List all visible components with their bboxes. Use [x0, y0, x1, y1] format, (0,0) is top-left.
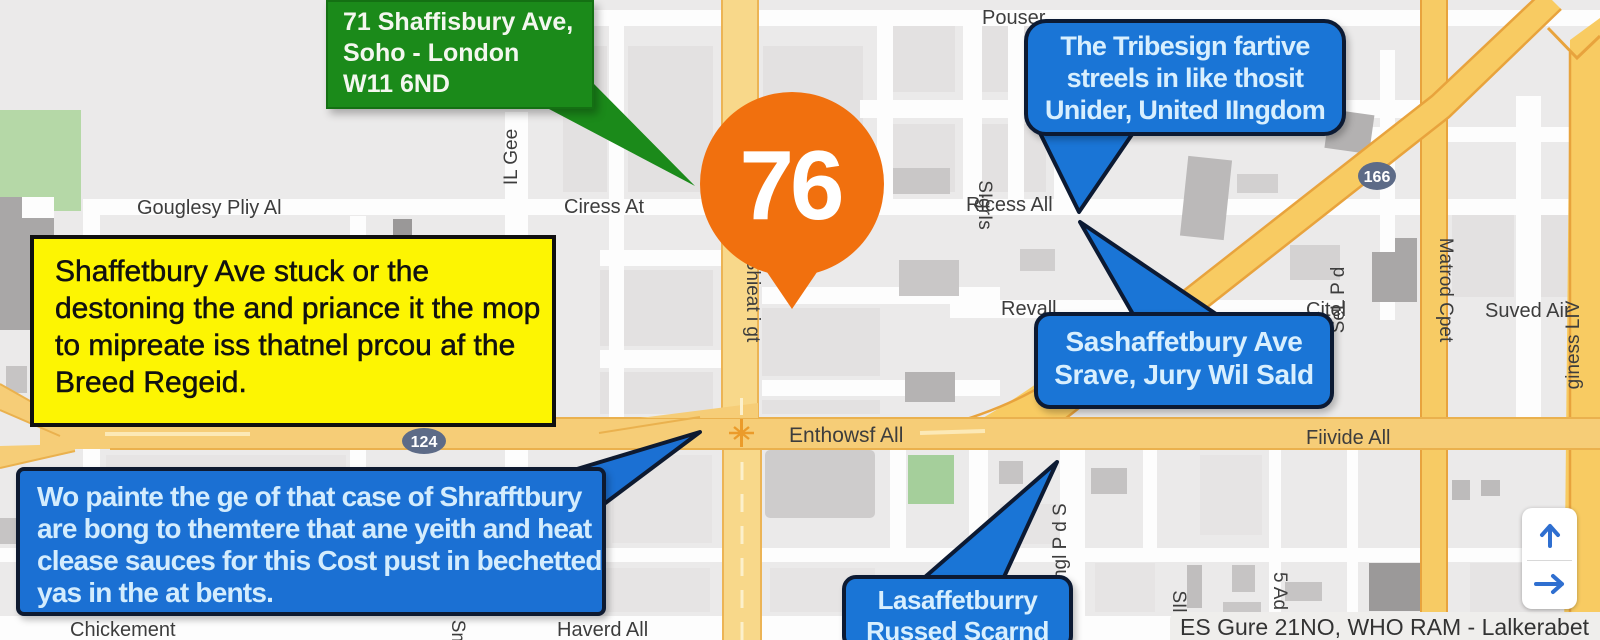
svg-text:166: 166 — [1364, 169, 1391, 186]
svg-text:Haverd All: Haverd All — [557, 619, 648, 640]
svg-text:5 Ad: 5 Ad — [1269, 572, 1290, 610]
svg-text:Sm: Sm — [447, 620, 468, 640]
svg-text:Shieat i gt: Shieat i gt — [742, 258, 763, 343]
svg-text:Chickement: Chickement — [70, 619, 176, 640]
svg-text:Enthowsf All: Enthowsf All — [789, 424, 903, 447]
svg-text:76: 76 — [739, 130, 841, 240]
svg-text:124: 124 — [411, 434, 438, 451]
svg-text:SIgrIs: SIgrIs — [974, 180, 995, 230]
svg-text:Fiivide All: Fiivide All — [1306, 427, 1390, 449]
svg-text:Matrod Cpet: Matrod Cpet — [1435, 238, 1456, 343]
svg-text:Suved Air: Suved Air — [1485, 300, 1571, 322]
svg-text:Gouglesy Pliy Al: Gouglesy Pliy Al — [137, 197, 282, 219]
svg-text:IL Gee: IL Gee — [501, 129, 522, 185]
svg-text:giness LIV: giness LIV — [1563, 300, 1584, 389]
svg-text:Ciress At: Ciress At — [564, 196, 644, 218]
